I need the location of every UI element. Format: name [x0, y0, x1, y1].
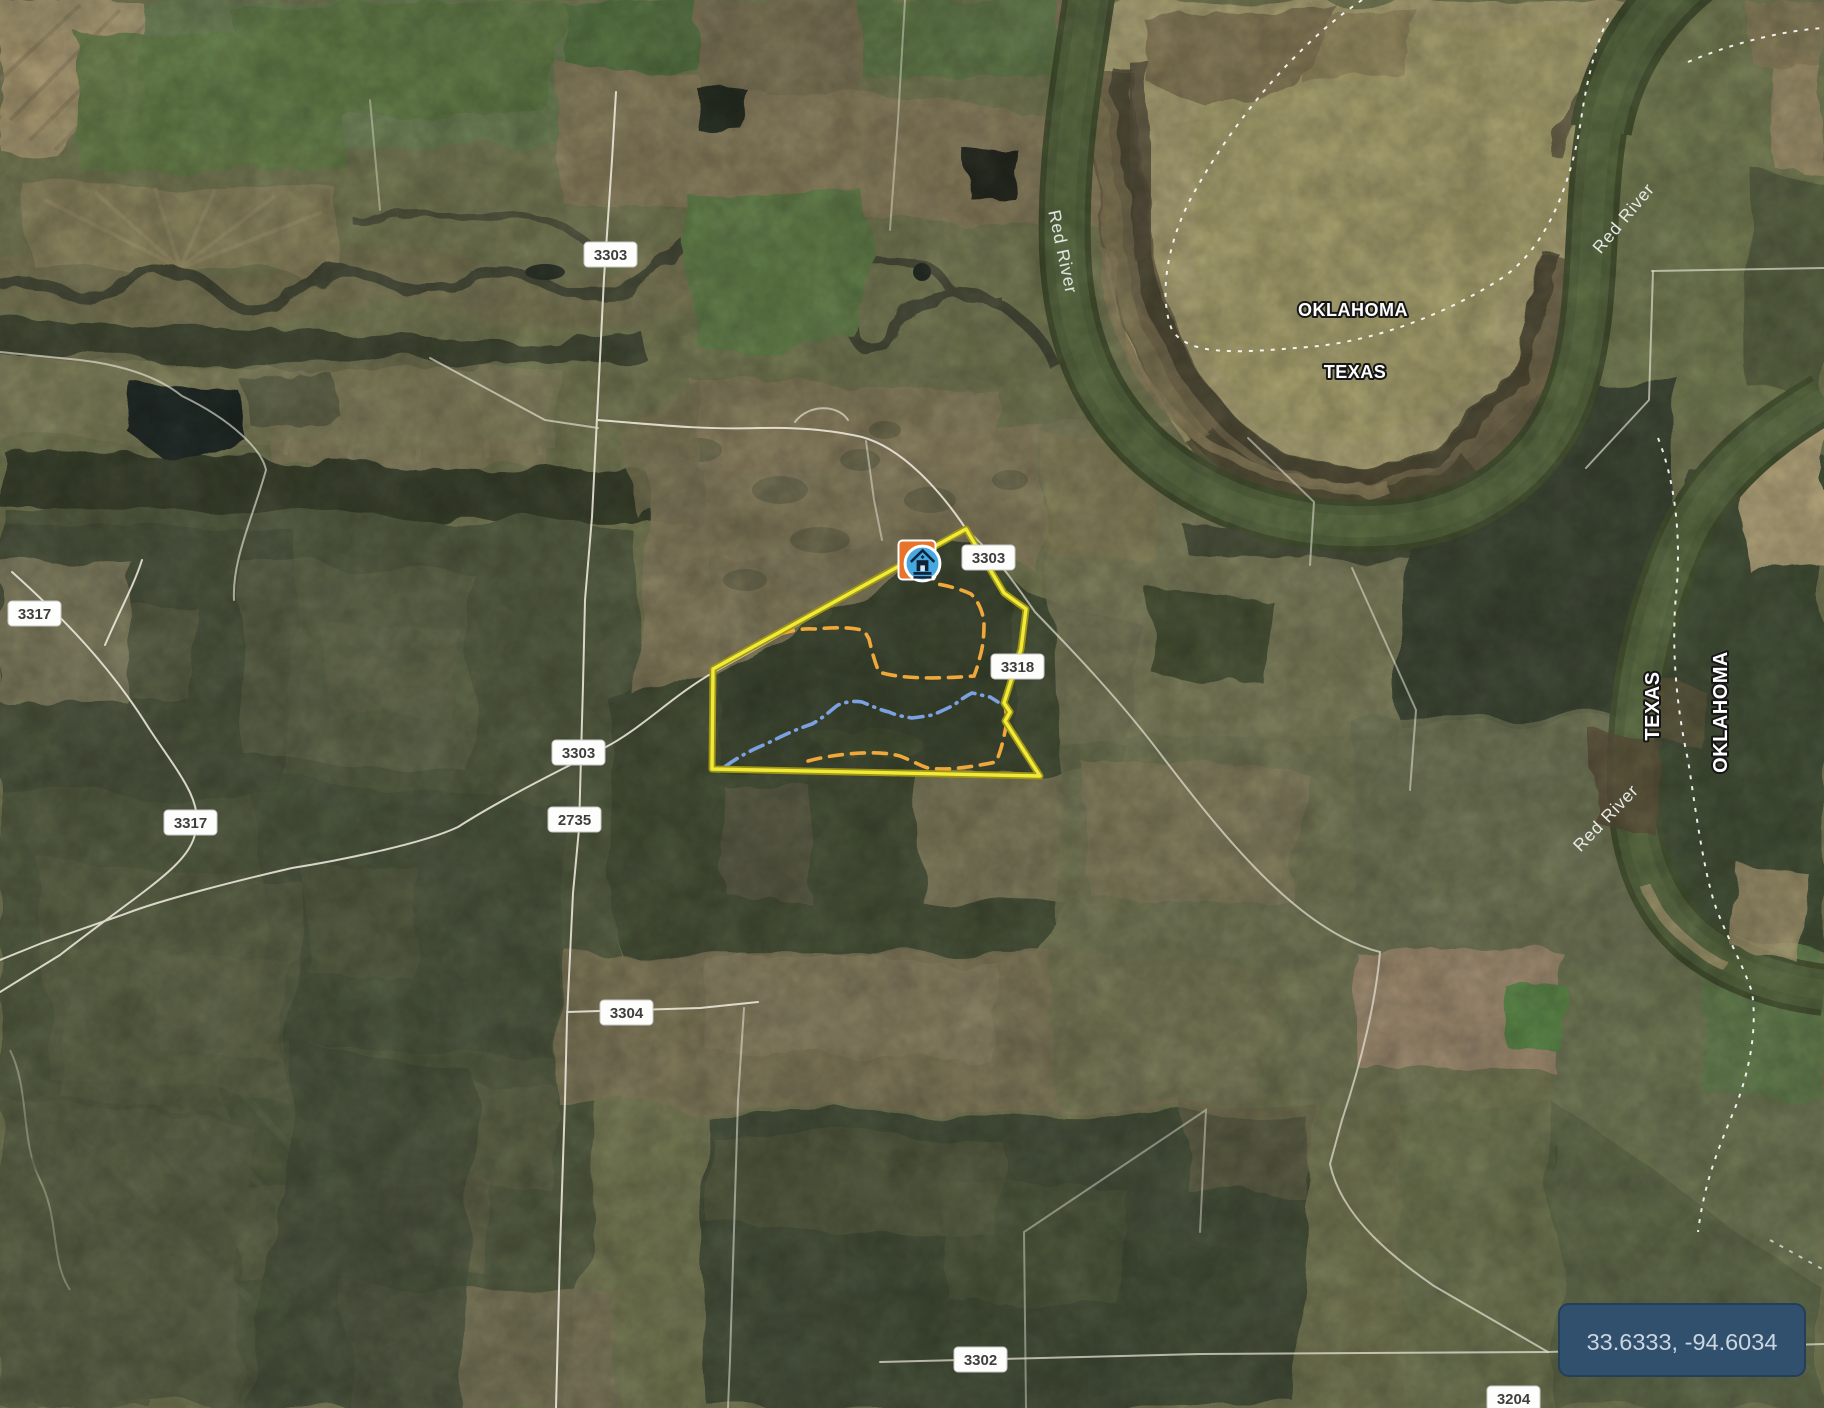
- svg-text:3303: 3303: [972, 550, 1005, 567]
- svg-text:OKLAHOMA: OKLAHOMA: [1710, 651, 1732, 773]
- svg-text:33.6333, -94.6034: 33.6333, -94.6034: [1587, 1329, 1778, 1355]
- svg-text:OKLAHOMA: OKLAHOMA: [1298, 300, 1408, 320]
- svg-text:3317: 3317: [18, 606, 51, 623]
- svg-text:3303: 3303: [594, 247, 627, 264]
- svg-text:TEXAS: TEXAS: [1324, 362, 1387, 382]
- svg-text:3302: 3302: [964, 1352, 997, 1369]
- svg-text:3303: 3303: [562, 745, 595, 762]
- svg-text:2735: 2735: [558, 812, 591, 829]
- svg-text:3204: 3204: [1497, 1391, 1531, 1408]
- svg-text:TEXAS: TEXAS: [1642, 671, 1664, 740]
- svg-text:3304: 3304: [610, 1005, 644, 1022]
- svg-text:3317: 3317: [174, 815, 207, 832]
- svg-text:3318: 3318: [1001, 659, 1034, 676]
